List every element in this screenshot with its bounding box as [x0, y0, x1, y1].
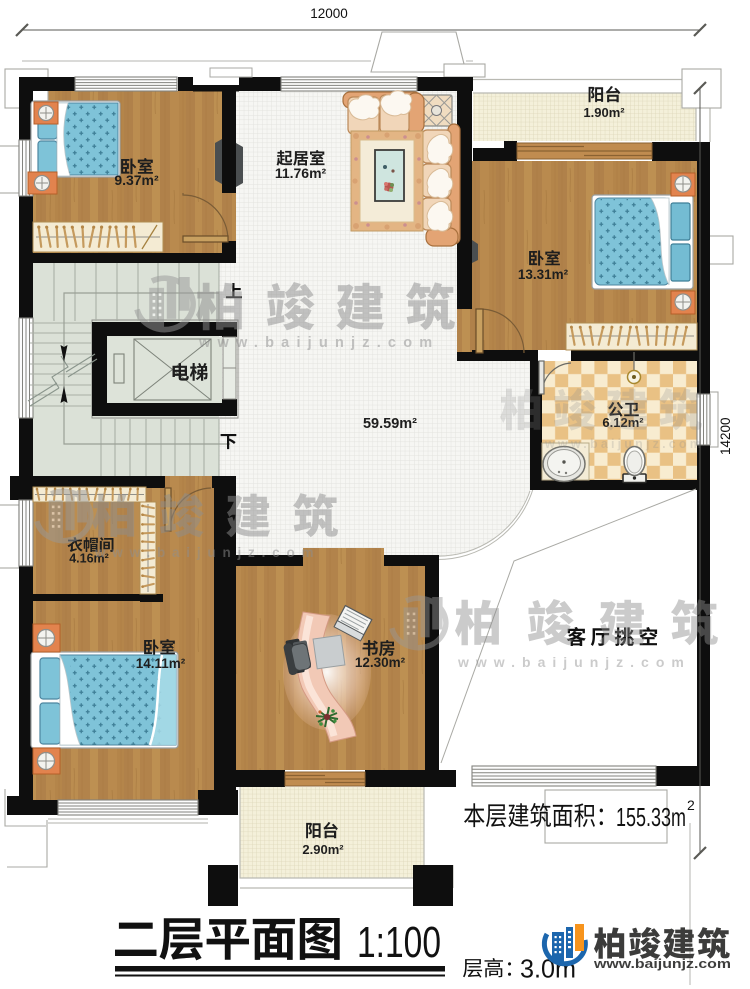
svg-text:1:100: 1:100	[357, 918, 441, 967]
svg-text:59.59m²: 59.59m²	[363, 416, 417, 432]
svg-text:1.90m²: 1.90m²	[583, 105, 625, 120]
svg-text:www.baijunjz.com: www.baijunjz.com	[94, 545, 320, 560]
svg-text:www.baijunjz.com: www.baijunjz.com	[544, 437, 704, 451]
svg-text:9.37m²: 9.37m²	[114, 172, 159, 188]
svg-text:155.33m: 155.33m	[616, 802, 686, 832]
svg-text:14200: 14200	[718, 417, 733, 455]
svg-text:2: 2	[687, 797, 695, 813]
svg-text:11.76m²: 11.76m²	[275, 165, 327, 181]
svg-text:12000: 12000	[310, 6, 348, 21]
svg-text:12.30m²: 12.30m²	[355, 655, 406, 670]
svg-text:13.31m²: 13.31m²	[518, 267, 569, 282]
svg-text:www.baijunjz.com: www.baijunjz.com	[593, 957, 731, 971]
svg-text:2.90m²: 2.90m²	[302, 842, 344, 857]
svg-text:www.baijunjz.com: www.baijunjz.com	[457, 654, 691, 670]
svg-text:14.11m²: 14.11m²	[136, 656, 186, 671]
svg-text:www.baijunjz.com: www.baijunjz.com	[198, 335, 439, 351]
